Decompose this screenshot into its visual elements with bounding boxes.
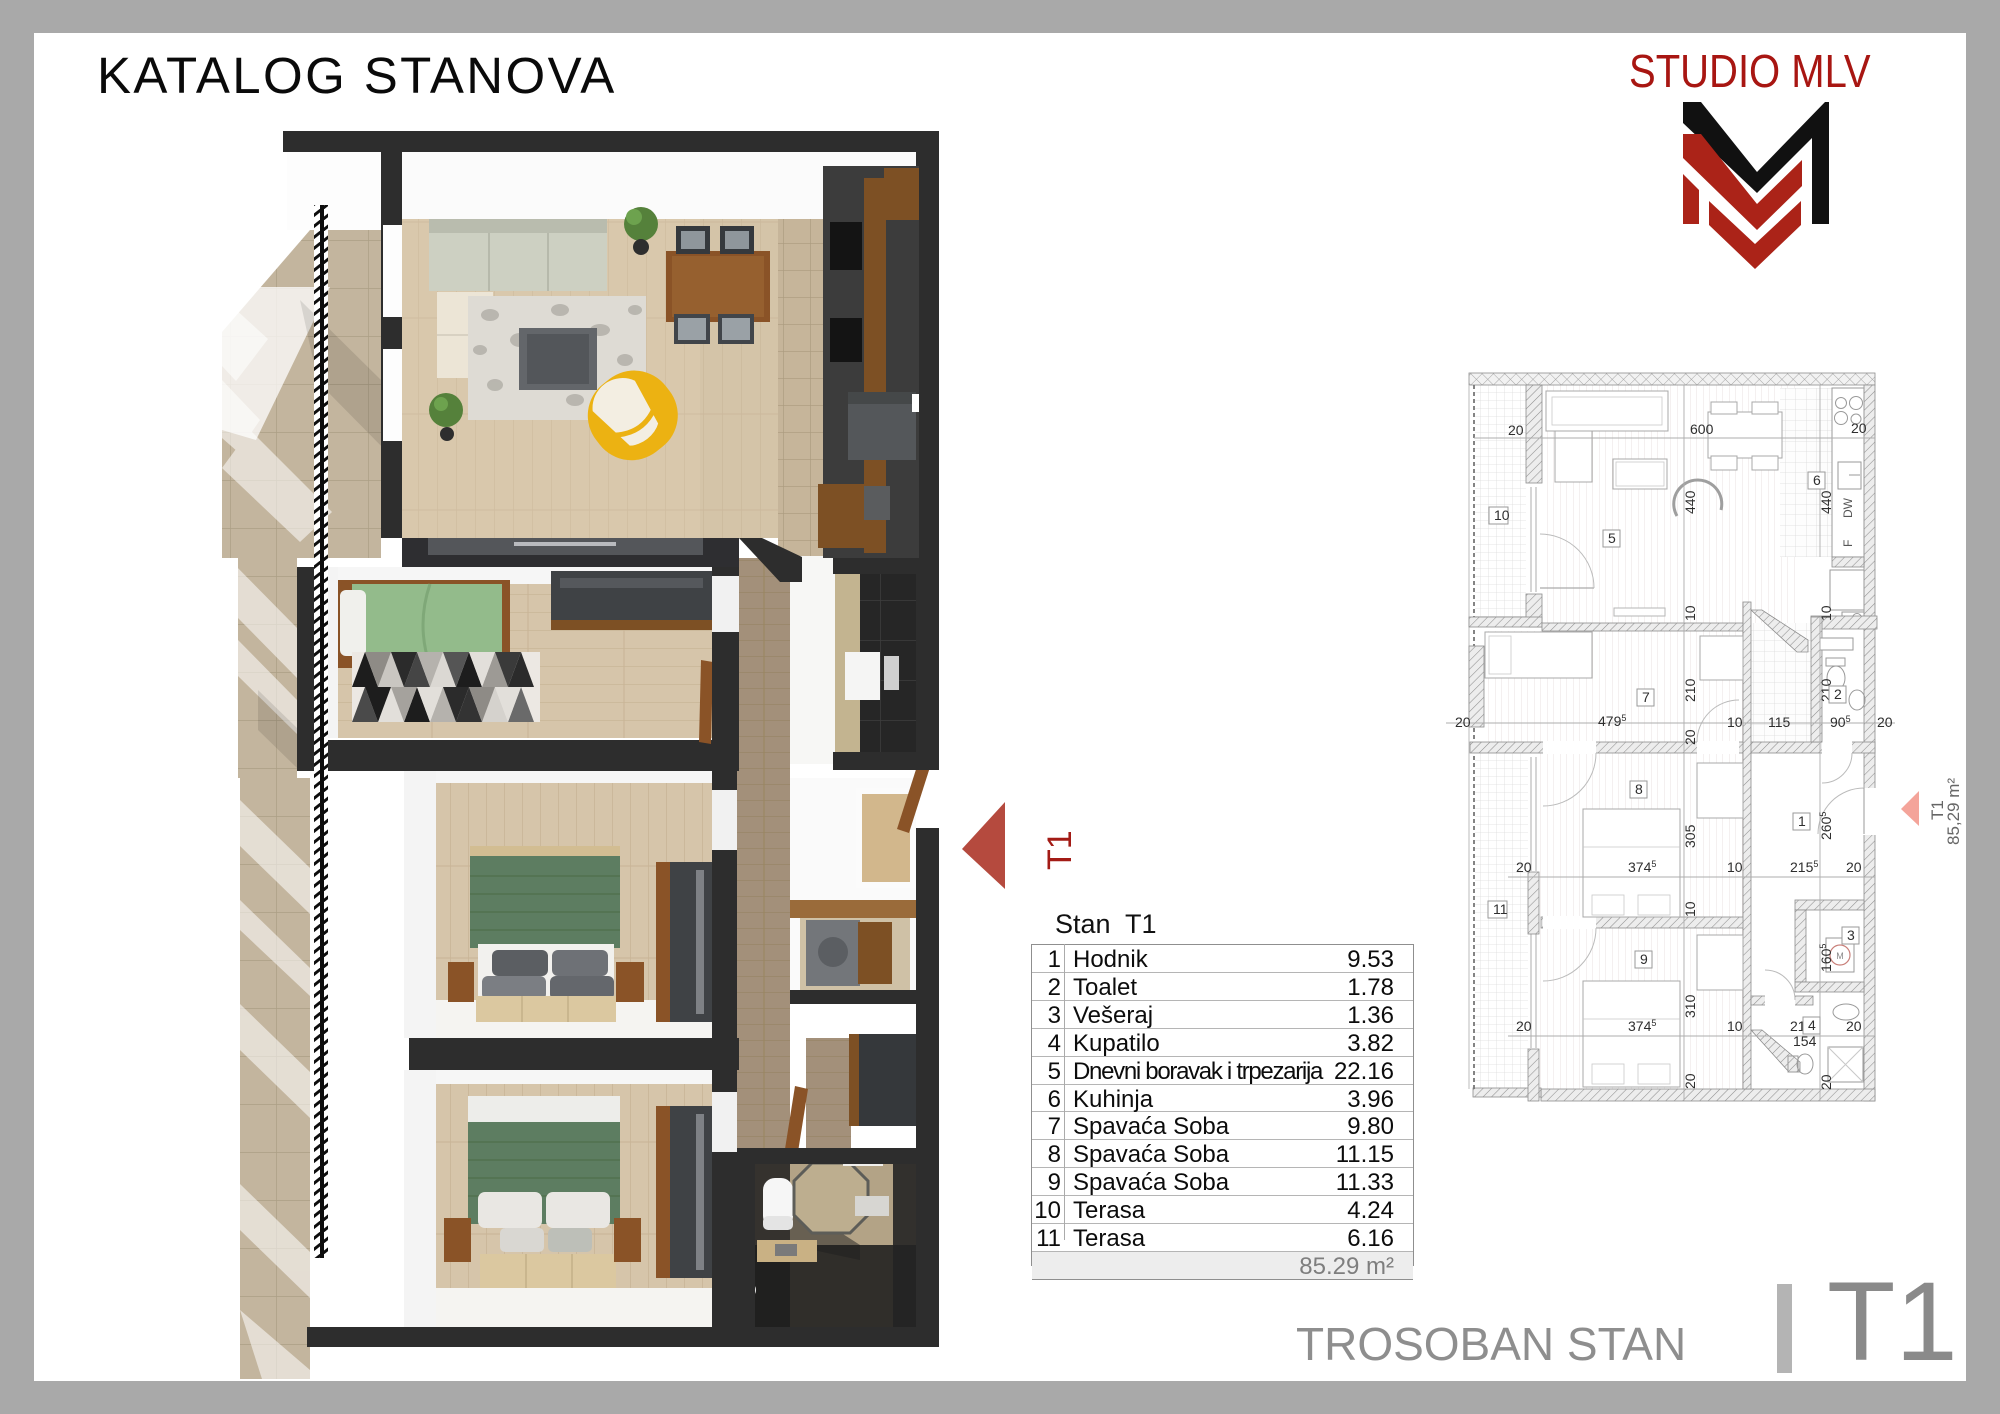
svg-text:20: 20	[1818, 1074, 1834, 1090]
svg-text:20: 20	[1455, 714, 1471, 730]
svg-text:20: 20	[1846, 859, 1862, 875]
svg-text:10: 10	[1727, 859, 1743, 875]
svg-text:20: 20	[1877, 714, 1893, 730]
svg-text:20: 20	[1508, 422, 1524, 438]
svg-text:9: 9	[1640, 951, 1648, 967]
svg-text:2: 2	[1834, 686, 1842, 702]
svg-text:6: 6	[1813, 472, 1821, 488]
svg-text:20: 20	[1851, 420, 1867, 436]
svg-text:440: 440	[1818, 490, 1834, 514]
svg-text:10: 10	[1727, 714, 1743, 730]
svg-text:20: 20	[1516, 859, 1532, 875]
svg-text:600: 600	[1690, 421, 1714, 437]
svg-text:10: 10	[1682, 605, 1698, 621]
svg-text:20: 20	[1516, 1018, 1532, 1034]
svg-text:305: 305	[1682, 824, 1698, 848]
svg-text:8: 8	[1635, 781, 1643, 797]
svg-text:905: 905	[1830, 714, 1851, 730]
svg-text:10: 10	[1727, 1018, 1743, 1034]
svg-text:2605: 2605	[1818, 812, 1834, 840]
svg-text:5: 5	[1608, 530, 1616, 546]
svg-text:20: 20	[1846, 1018, 1862, 1034]
svg-text:210: 210	[1682, 678, 1698, 702]
svg-text:440: 440	[1682, 490, 1698, 514]
svg-text:F: F	[1841, 540, 1855, 547]
svg-text:11: 11	[1493, 901, 1508, 917]
svg-text:20: 20	[1682, 1073, 1698, 1089]
svg-text:10: 10	[1682, 901, 1698, 917]
svg-text:M: M	[1836, 951, 1844, 961]
svg-text:1: 1	[1798, 813, 1806, 829]
svg-text:310: 310	[1682, 994, 1698, 1018]
svg-text:20: 20	[1682, 729, 1698, 745]
svg-text:7: 7	[1642, 689, 1650, 705]
svg-text:2155: 2155	[1790, 859, 1818, 875]
svg-text:10: 10	[1494, 507, 1510, 523]
svg-text:DW: DW	[1841, 497, 1855, 518]
svg-text:10: 10	[1818, 605, 1834, 621]
svg-text:3: 3	[1847, 927, 1855, 943]
svg-text:154: 154	[1793, 1033, 1817, 1049]
svg-text:4: 4	[1808, 1017, 1816, 1033]
svg-text:115: 115	[1768, 714, 1791, 730]
